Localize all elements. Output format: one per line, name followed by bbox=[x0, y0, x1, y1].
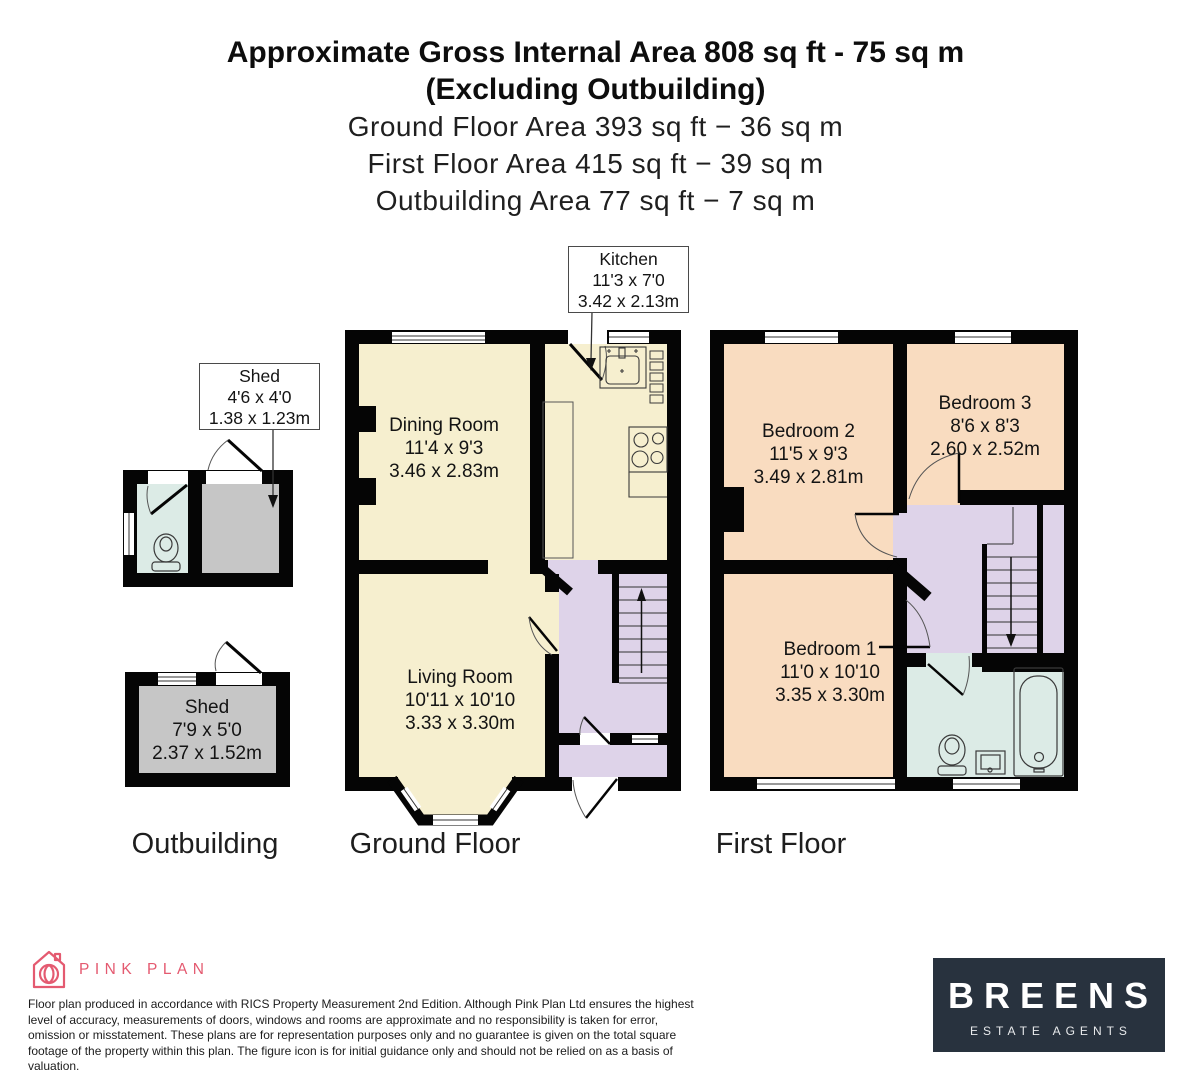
shed-large-label: Shed 7'9 x 5'0 2.37 x 1.52m bbox=[132, 696, 282, 765]
breens-logo: BREENS ESTATE AGENTS bbox=[933, 958, 1165, 1052]
shed-large-window bbox=[158, 673, 196, 685]
disclaimer-text: Floor plan produced in accordance with R… bbox=[28, 997, 708, 1075]
kitchen-window bbox=[609, 332, 649, 343]
title-block: Approximate Gross Internal Area 808 sq f… bbox=[0, 34, 1191, 219]
wc-window bbox=[124, 513, 134, 555]
bedroom-3-label: Bedroom 3 8'6 x 8'3 2.60 x 2.52m bbox=[903, 392, 1067, 461]
shed-large-door bbox=[215, 642, 262, 685]
bathroom-window bbox=[953, 779, 1020, 789]
shed-small-metric: 1.38 x 1.23m bbox=[200, 408, 319, 429]
shed-small-name: Shed bbox=[200, 366, 319, 387]
title-line-1: Approximate Gross Internal Area 808 sq f… bbox=[0, 34, 1191, 71]
dining-room-label: Dining Room 11'4 x 9'3 3.46 x 2.83m bbox=[361, 414, 527, 483]
kitchen-imperial: 11'3 x 7'0 bbox=[569, 270, 688, 291]
pink-plan-house-icon bbox=[26, 946, 72, 992]
bathroom bbox=[907, 667, 1064, 777]
pink-plan-brand: PINK PLAN bbox=[79, 961, 209, 979]
title-line-4: First Floor Area 415 sq ft − 39 sq m bbox=[0, 145, 1191, 182]
caption-ground-floor: Ground Floor bbox=[330, 828, 540, 861]
kitchen-name: Kitchen bbox=[569, 249, 688, 270]
breens-subtitle: ESTATE AGENTS bbox=[933, 1017, 1165, 1038]
kitchen-callout-box: Kitchen 11'3 x 7'0 3.42 x 2.13m bbox=[568, 246, 689, 313]
hall-window bbox=[632, 735, 658, 743]
shed-small-imperial: 4'6 x 4'0 bbox=[200, 387, 319, 408]
caption-outbuilding: Outbuilding bbox=[100, 828, 310, 861]
caption-first-floor: First Floor bbox=[676, 828, 886, 861]
bedroom-2-label: Bedroom 2 11'5 x 9'3 3.49 x 2.81m bbox=[726, 420, 891, 489]
shed-small-door bbox=[206, 440, 262, 484]
outbuilding-top-plan bbox=[123, 429, 293, 587]
shed-small-callout-box: Shed 4'6 x 4'0 1.38 x 1.23m bbox=[199, 363, 320, 430]
bedroom-1-label: Bedroom 1 11'0 x 10'10 3.35 x 3.30m bbox=[740, 638, 920, 707]
bedroom-2-window bbox=[765, 332, 838, 343]
ground-floor-plan bbox=[345, 312, 681, 820]
floor-plan-page: Approximate Gross Internal Area 808 sq f… bbox=[0, 0, 1191, 1080]
breens-name: BREENS bbox=[933, 958, 1165, 1017]
bay-window bbox=[392, 777, 519, 820]
front-door bbox=[572, 777, 618, 818]
bedroom-3-window bbox=[955, 332, 1011, 343]
bedroom-1-window bbox=[757, 779, 895, 789]
kitchen-metric: 3.42 x 2.13m bbox=[569, 291, 688, 312]
shed-small-leader-line bbox=[268, 429, 278, 508]
title-line-3: Ground Floor Area 393 sq ft − 36 sq m bbox=[0, 108, 1191, 145]
living-room-label: Living Room 10'11 x 10'10 3.33 x 3.30m bbox=[370, 666, 550, 735]
title-line-2: (Excluding Outbuilding) bbox=[0, 71, 1191, 108]
title-line-5: Outbuilding Area 77 sq ft − 7 sq m bbox=[0, 182, 1191, 219]
dining-window bbox=[392, 332, 485, 343]
